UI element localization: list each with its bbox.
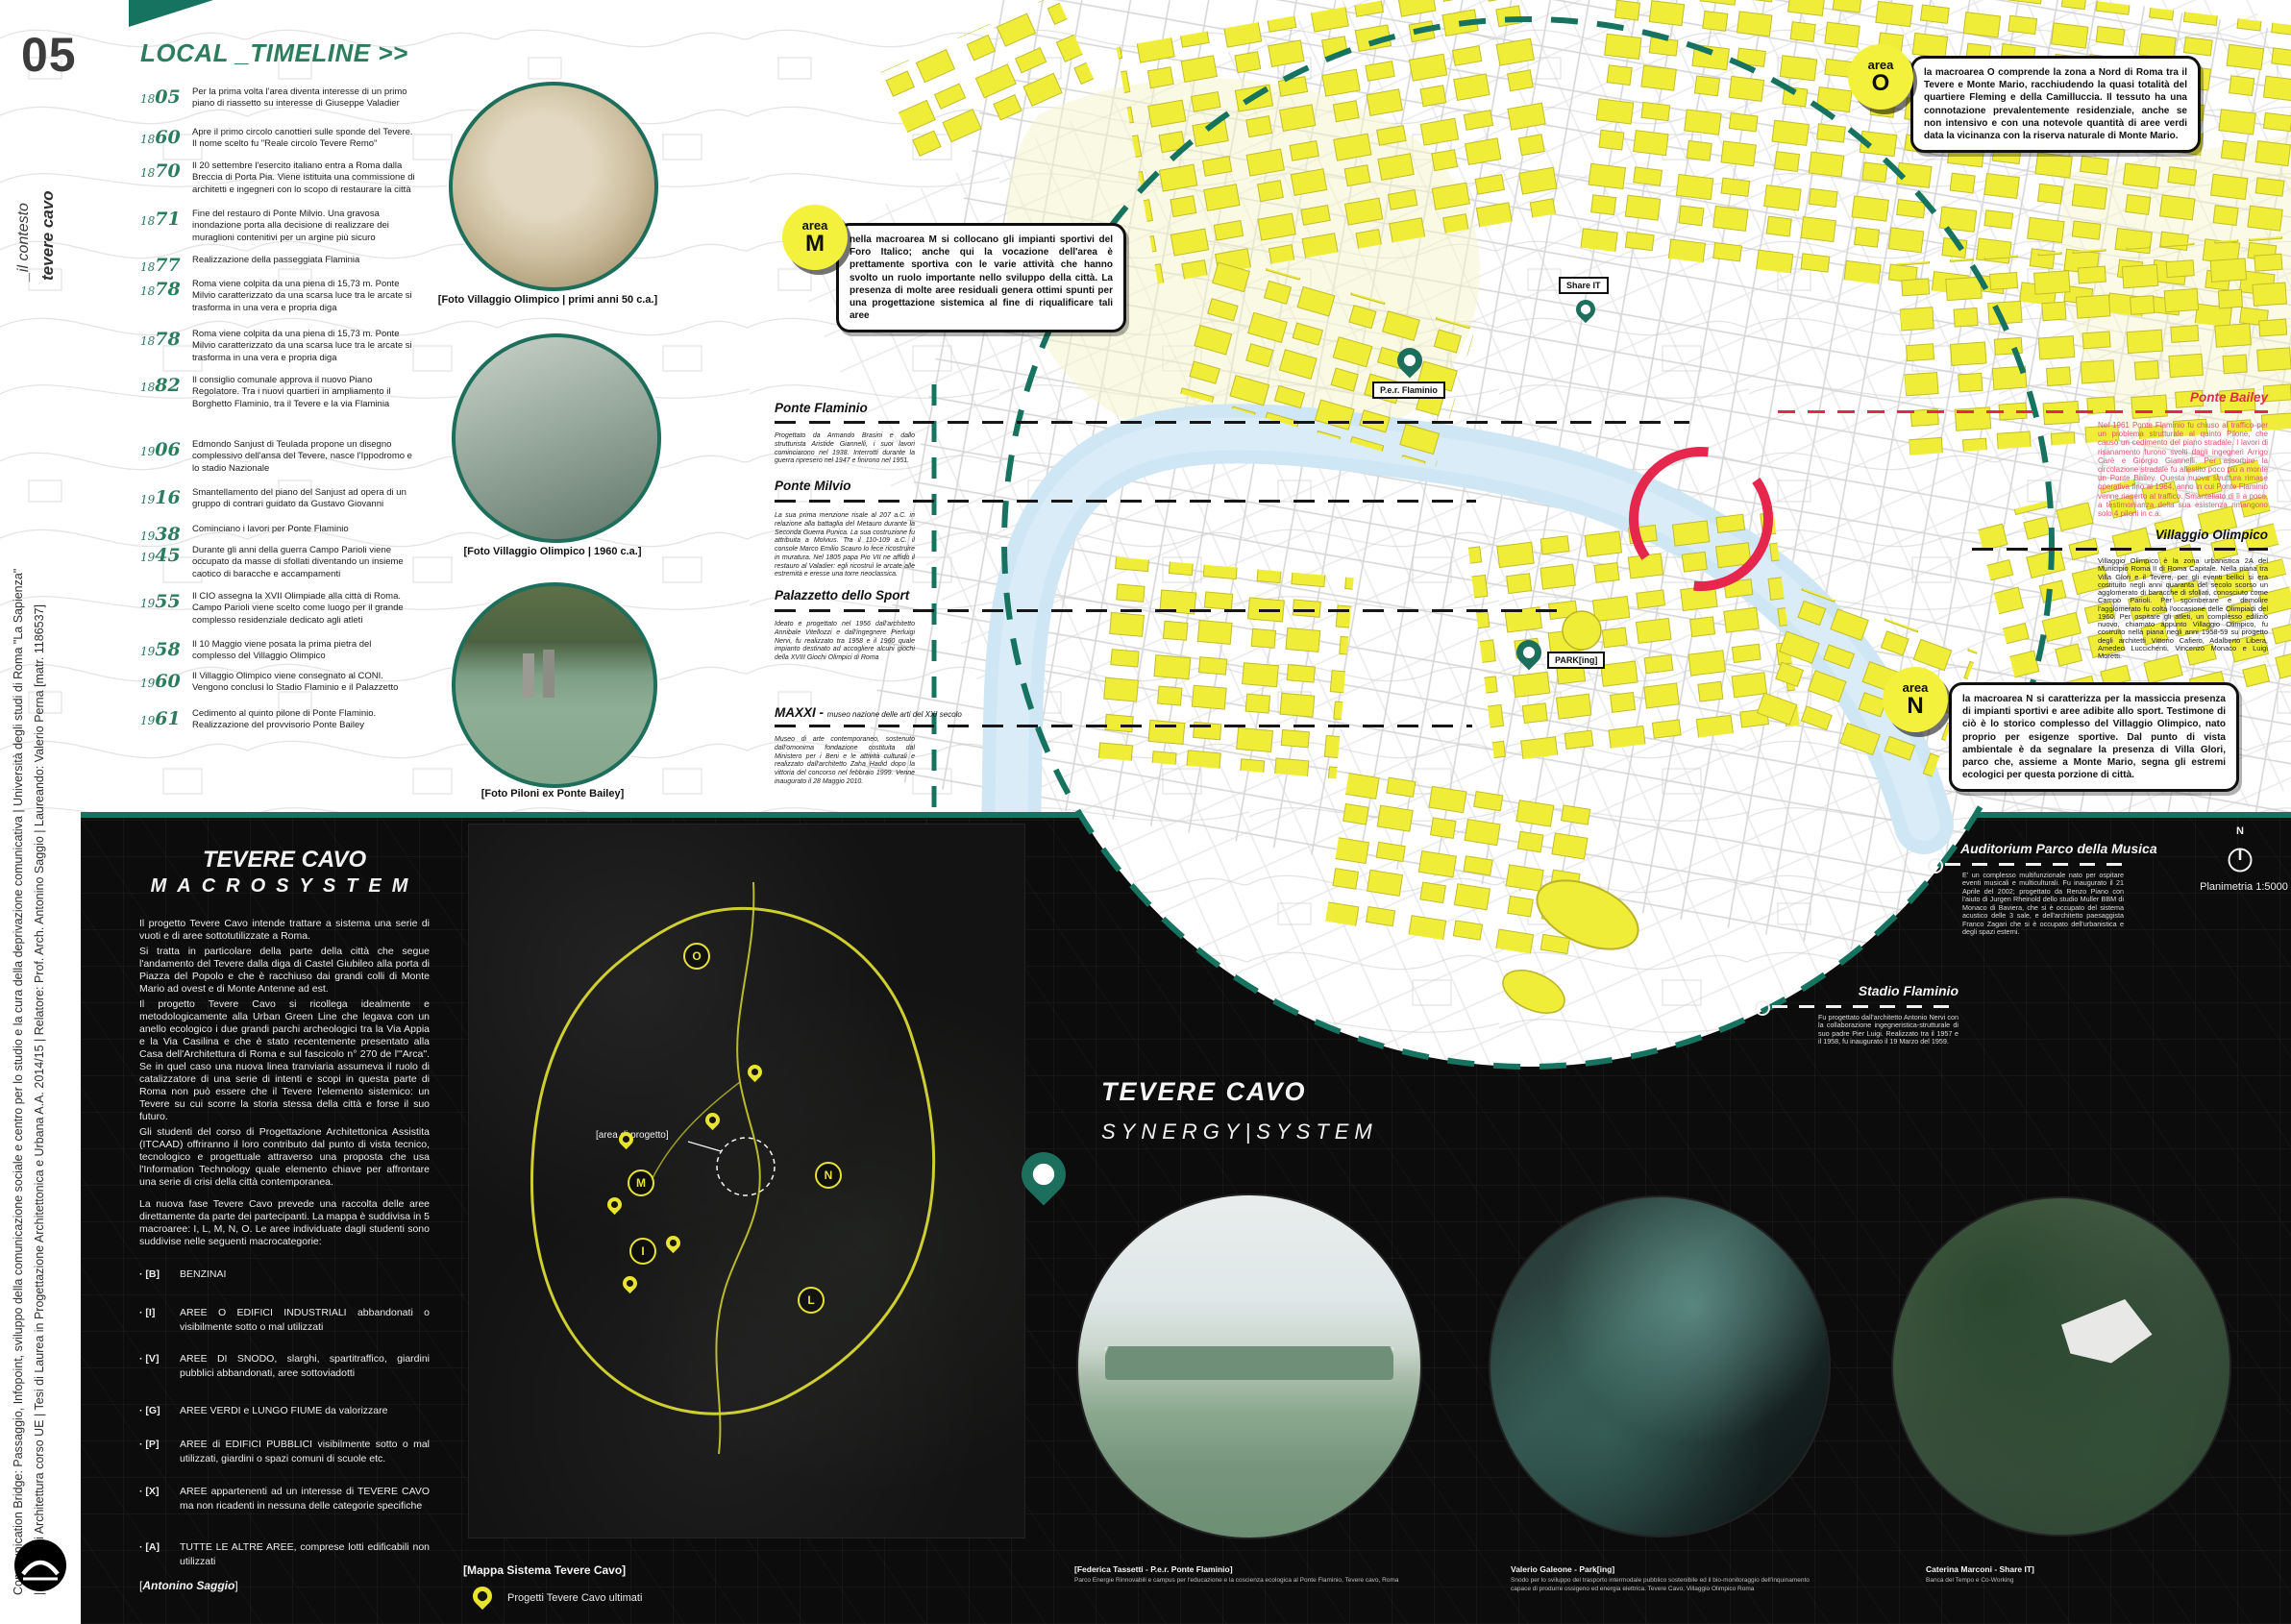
photo-villaggio-olimpico-1960 [452,333,661,543]
context-label-line1: _il contesto [15,203,33,281]
credit-line-1: Communication Bridge: Passaggio, Infopoi… [12,569,25,1595]
ponte-flaminio-text: Progettato da Armando Brasini e dallo st… [775,432,915,466]
project-caption: Valerio Galeone - Park[ing] Snodo per lo… [1511,1564,1828,1594]
museum-building-shape [2061,1299,2153,1364]
credit-line-2: | Facoltà di Architettura corso UE | Tes… [33,604,46,1595]
communication-bridge-logo [14,1539,66,1591]
area-badge-N: areaN [1883,667,1948,732]
villaggio-olimpico-title: Villaggio Olimpico [2114,528,2268,542]
area-text-M: nella macroarea M si collocano gli impia… [836,223,1126,332]
macrosystem-paragraph: Il progetto Tevere Cavo si ricollega ide… [139,998,430,1123]
sheet-number: 05 [21,27,77,83]
bridge-logo-icon [14,1539,66,1591]
stadio-flaminio-text: Fu progettato dall'architetto Antonio Ne… [1818,1014,1958,1046]
palazzetto-leader [775,609,1568,612]
timeline-entry: 1878Roma viene colpita da una piena di 1… [140,279,429,314]
auditorium-title: Auditorium Parco della Musica [1960,841,2124,856]
timeline-entry: 1958Il 10 Maggio viene posata la prima p… [140,639,429,663]
maxxi-title: MAXXI - museo nazione delle arti del XXI… [775,705,962,720]
macroarea-marker: L [798,1287,825,1314]
category-row: · [V]AREE DI SNODO, slarghi, spartitraff… [139,1352,430,1381]
auditorium-text: E' un complesso multifunzionale nato per… [1962,872,2124,937]
tevere-cavo-system-map: [area di progetto] O M N I L [468,824,1025,1538]
category-row: · [B]BENZINAI [139,1267,430,1282]
synergy-subtitle: SYNERGY|SYSTEM [1101,1120,1378,1144]
system-map-caption: [Mappa Sistema Tevere Cavo] [463,1563,626,1577]
timeline-entry: 1961Cedimento al quinto pilone di Ponte … [140,708,429,732]
map-label-per-flaminio: P.e.r. Flaminio [1372,381,1445,399]
macrosystem-title: TEVERE CAVO [139,847,430,874]
macrosystem-text: Il progetto Tevere Cavo intende trattare… [139,918,430,1251]
area-text-N: la macroarea N si caratterizza per la ma… [1949,682,2239,792]
macroarea-marker: I [629,1238,656,1265]
compass-icon [2227,847,2254,874]
timeline-entry: 1955Il CIO assegna la XVII Olimpiade all… [140,591,429,627]
photo-caption: [Foto Villaggio Olimpico | primi anni 50… [404,294,692,306]
system-map-artwork [469,824,1024,1538]
timeline-entry: 1906Edmondo Sanjust di Teulada propone u… [140,439,429,475]
macroarea-marker: N [815,1162,842,1189]
timeline-entry: 1960Il Villaggio Olimpico viene consegna… [140,671,429,695]
ponte-flaminio-leader [775,421,1689,424]
per-flaminio-pin [1392,343,1428,379]
area-badge-O: areaO [1848,44,1913,110]
category-row: · [I]AREE O EDIFICI INDUSTRIALI abbandon… [139,1306,430,1335]
project-photo-ponte-flaminio [1076,1193,1422,1539]
macroarea-marker: M [628,1169,654,1196]
ponte-milvio-title: Ponte Milvio [775,479,851,493]
share-it-pin [1572,296,1599,323]
project-caption: Caterina Marconi - Share IT] Banca del T… [1926,1564,2233,1586]
timeline-list: 1805Per la prima volta l'area diventa in… [140,86,429,740]
legend-pin-icon [469,1583,496,1610]
timeline-entry: 1871Fine del restauro di Ponte Milvio. U… [140,209,429,244]
macrosystem-paragraph: La nuova fase Tevere Cavo prevede una ra… [139,1198,430,1248]
synergy-title: TEVERE CAVO [1101,1077,1307,1107]
compass-north-letter: N [2233,825,2247,837]
photo-piloni-ponte-bailey [452,582,657,788]
maxxi-leader [775,725,1472,727]
area-badge-M: areaM [782,205,848,270]
ponte-milvio-text: La sua prima menzione risale al 207 a.C.… [775,512,915,579]
timeline-entry: 1877Realizzazione della passeggiata Flam… [140,255,429,266]
stadio-flaminio-title: Stadio Flaminio [1805,983,1958,998]
maxxi-text: Museo di arte contemporaneo, sostenuto d… [775,736,915,787]
photo-villaggio-olimpico-1950 [449,82,658,291]
ponte-bailey-title: Ponte Bailey [2114,390,2268,405]
ponte-bailey-text: Nel 1961 Ponte Flaminio fu chiuso al tra… [2098,421,2268,518]
project-photo-parking [1489,1195,1831,1538]
black-bottom-panel: TEVERE CAVO MACROSYSTEM Il progetto Teve… [81,812,2291,1624]
pier-shape [523,653,534,698]
timeline-entry: 1878Roma viene colpita da una piena di 1… [140,329,429,364]
category-row: · [X]AREE appartenenti ad un interesse d… [139,1485,430,1513]
timeline-entry: 1938Cominciano i lavori per Ponte Flamin… [140,524,429,535]
timeline-entry: 1916Smantellamento del piano del Sanjust… [140,487,429,511]
category-row: · [P]AREE di EDIFICI PUBBLICI visibilmen… [139,1438,430,1466]
timeline-entry: 1945Durante gli anni della guerra Campo … [140,545,429,580]
macroarea-marker: O [683,943,710,970]
parking-pin [1512,635,1547,671]
bridge-shape [1105,1346,1392,1381]
poster-root: { "sidebar": { "number": "05", "context_… [0,0,2291,1618]
author-signature: [Antonino Saggio] [139,1579,238,1592]
timeline-entry: 1860Apre il primo circolo canottieri sul… [140,127,429,151]
palazzetto-title: Palazzetto dello Sport [775,588,909,603]
macrosystem-paragraph: Gli studenti del corso di Progettazione … [139,1126,430,1189]
timeline-entry: 1870Il 20 settembre l'esercito italiano … [140,160,429,196]
ponte-milvio-leader [775,500,1476,503]
map-scale-label: Planimetria 1:5000 [2157,881,2291,893]
system-map-legend: Progetti Tevere Cavo ultimati [507,1592,642,1604]
corner-triangle [129,0,213,27]
project-caption: [Federica Tassetti - P.e.r. Ponte Flamin… [1074,1564,1488,1586]
area-text-O: la macroarea O comprende la zona a Nord … [1910,56,2201,153]
villaggio-olimpico-leader [1972,548,2268,551]
photo-caption: [Foto Piloni ex Ponte Bailey] [423,788,682,800]
photo-caption: [Foto Villaggio Olimpico | 1960 c.a.] [413,546,692,557]
macrosystem-paragraph: Si tratta in particolare della parte del… [139,946,430,996]
ponte-flaminio-title: Ponte Flaminio [775,401,868,415]
stadio-leader-line [1772,1005,1958,1008]
auditorium-leader-line [1945,863,2124,866]
villaggio-olimpico-text: Villaggio Olimpico è la zona urbanistica… [2098,557,2268,660]
stadio-marker [1755,1000,1770,1016]
category-row: · [A]TUTTE LE ALTRE AREE, comprese lotti… [139,1540,430,1569]
category-row: · [G]AREE VERDI e LUNGO FIUME da valoriz… [139,1404,430,1418]
auditorium-marker [1928,858,1943,874]
pier-shape [543,650,554,698]
macrosystem-subtitle: MACROSYSTEM [139,875,430,898]
context-label-line2: tevere cavo [38,190,58,281]
macrosystem-paragraph: Il progetto Tevere Cavo intende trattare… [139,918,430,943]
map-label-share-it: Share IT [1559,277,1609,294]
timeline-entry: 1882Il consiglio comunale approva il nuo… [140,375,429,410]
ponte-bailey-leader [1778,410,2268,413]
project-photo-share-it [1891,1196,2231,1537]
timeline-entry: 1805Per la prima volta l'area diventa in… [140,86,429,111]
timeline-title: LOCAL _TIMELINE >> [140,38,408,68]
map-label-parking: PARK[ing] [1547,652,1605,669]
palazzetto-text: Ideato e progettato nel 1956 dall'archit… [775,621,915,663]
